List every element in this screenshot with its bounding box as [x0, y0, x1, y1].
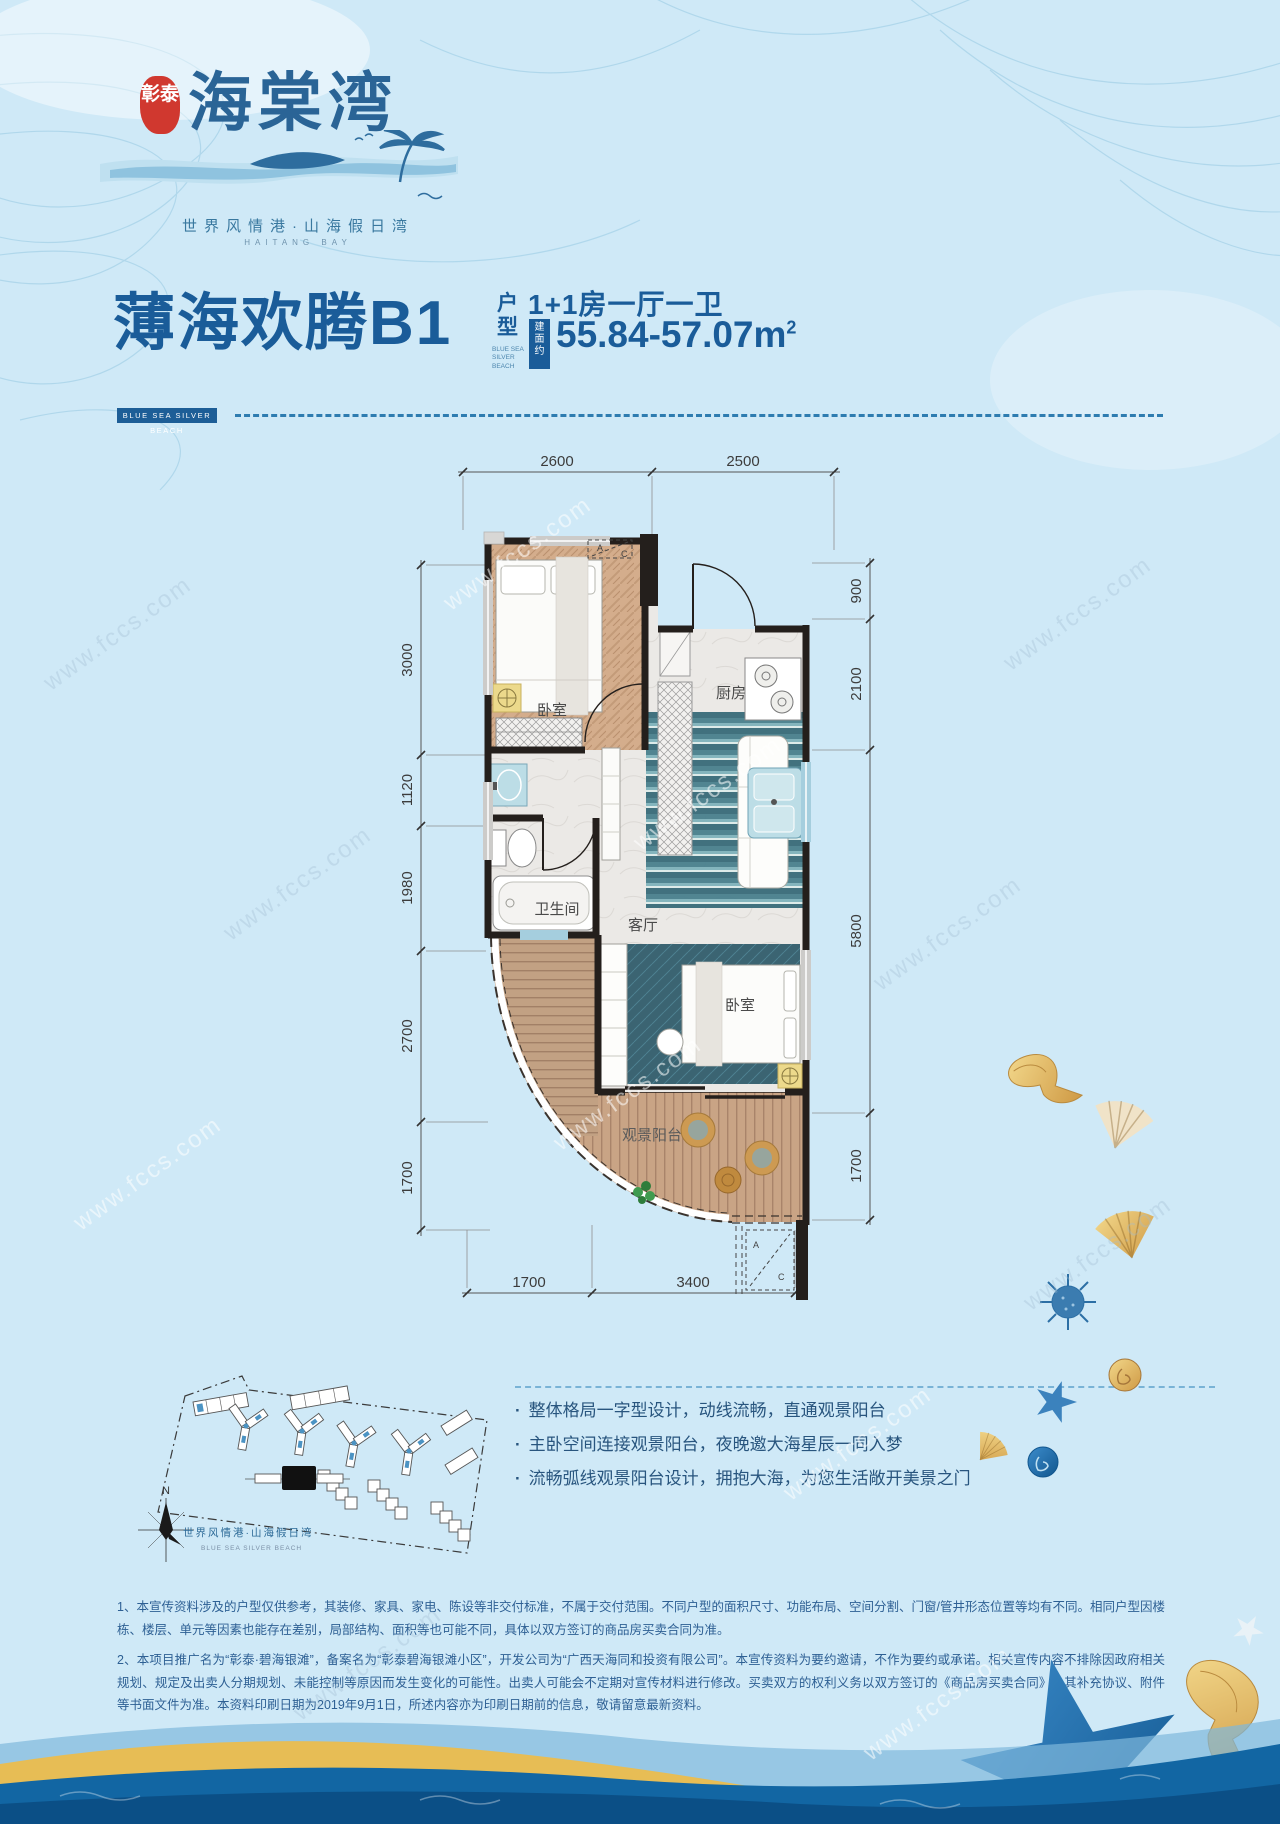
- area-number: 55.84-57.07m: [556, 314, 786, 355]
- watermark: www.fccs.com: [999, 551, 1158, 677]
- area-sup: 2: [786, 318, 796, 338]
- area-value: 55.84-57.07m2: [556, 314, 796, 356]
- logo-wave-palm-icon: [100, 130, 460, 210]
- dim-left-1: 3000: [399, 643, 416, 676]
- dim-left-4: 2700: [399, 1019, 416, 1052]
- swirl-shell-icon: [1028, 1447, 1058, 1477]
- toilet: [491, 829, 536, 867]
- dim-left-3: 1980: [399, 871, 416, 904]
- wardrobe: [496, 718, 582, 747]
- shell-small-gold-icon: [966, 1427, 1012, 1472]
- bullet-glyph: ·: [515, 1434, 521, 1456]
- ac-letter-c2: C: [778, 1272, 785, 1282]
- room-label-kitchen: 厨房: [716, 685, 746, 702]
- ocean-wave-footer: [0, 1684, 1280, 1824]
- ac-letter-a: A: [597, 543, 603, 553]
- room-label-bedroom2: 卧室: [725, 997, 755, 1014]
- bedroom2-bed: [682, 962, 800, 1066]
- bedroom2-lamp: [778, 1064, 802, 1088]
- dim-right-3: 5800: [848, 914, 865, 947]
- tv-cabinet: [602, 748, 620, 860]
- room-label-bedroom1: 卧室: [537, 702, 567, 719]
- ledge: [484, 532, 504, 544]
- dim-top-2: 2500: [726, 453, 759, 470]
- bullet-glyph: ·: [515, 1468, 521, 1490]
- bedroom2-shelf: [601, 944, 627, 1086]
- dim-right-2: 2100: [848, 667, 865, 700]
- bedroom1-lamp: [493, 684, 521, 712]
- kitchen-cabinets: [658, 632, 692, 855]
- bedroom2-ottoman: [657, 1029, 683, 1055]
- site-plan: N 世界风情港·山海假日湾 BLUE SEA SILVER BEACH: [105, 1180, 505, 1575]
- brand-seal: 彰泰: [140, 76, 180, 134]
- subtitle-chip: BLUE SEA SILVER BEACH: [117, 408, 217, 423]
- washbasin: [491, 764, 527, 806]
- scallop-shell-gold-icon: [1093, 1206, 1161, 1264]
- project-tagline-en: HAITANG BAY: [150, 238, 446, 247]
- project-tagline: 世界风情港·山海假日湾: [150, 215, 446, 236]
- dim-top-1: 2600: [540, 453, 573, 470]
- room-label-living: 客厅: [628, 917, 658, 934]
- wall-block: [640, 534, 658, 606]
- starfish-small-icon: [1030, 1375, 1082, 1426]
- site-buildings: [193, 1386, 478, 1541]
- sea-urchin-icon: [1040, 1274, 1096, 1330]
- bullet-glyph: ·: [515, 1400, 521, 1422]
- ac-unit-bottom: A C: [736, 1226, 794, 1296]
- title-dashed-line: [235, 414, 1163, 417]
- dim-right-1: 900: [848, 578, 865, 603]
- dim-left-2: 1120: [399, 774, 416, 806]
- room-label-bath: 卫生间: [534, 901, 579, 918]
- stove: [745, 658, 801, 720]
- site-plan-label-en: BLUE SEA SILVER BEACH: [201, 1545, 302, 1552]
- unit-title: 薄海欢腾B1: [113, 272, 452, 362]
- conch-shell-icon: [1004, 1043, 1082, 1119]
- compass-north-label: N: [162, 1485, 170, 1497]
- starfish-tiny-icon: [1228, 1609, 1269, 1649]
- compass-icon: N: [138, 1485, 194, 1562]
- site-plan-label: 世界风情港·山海假日湾: [183, 1526, 314, 1539]
- spiral-shell-icon: [1109, 1359, 1141, 1391]
- unit-title-suffix: 户型: [497, 292, 523, 340]
- floor-plan: 2600 2500 3000 1120 1980 2700 1700 900 2…: [340, 430, 880, 1310]
- room-label-balcony: 观景阳台: [622, 1127, 682, 1144]
- poster-page: { "page": { "watermark": "www.fccs.com",…: [0, 0, 1280, 1824]
- ac-letter-c: C: [621, 549, 628, 559]
- area-badge: 建面约: [529, 319, 550, 369]
- scallop-shell-icon: [1086, 1095, 1156, 1156]
- wall-block-bottom: [796, 1220, 808, 1300]
- watermark: www.fccs.com: [39, 571, 198, 697]
- dim-bottom-1: 1700: [512, 1274, 545, 1291]
- watermark: www.fccs.com: [869, 871, 1028, 997]
- ac-letter-a2: A: [753, 1240, 759, 1250]
- dim-bottom-2: 3400: [676, 1274, 709, 1291]
- kitchen-sink: [748, 768, 802, 838]
